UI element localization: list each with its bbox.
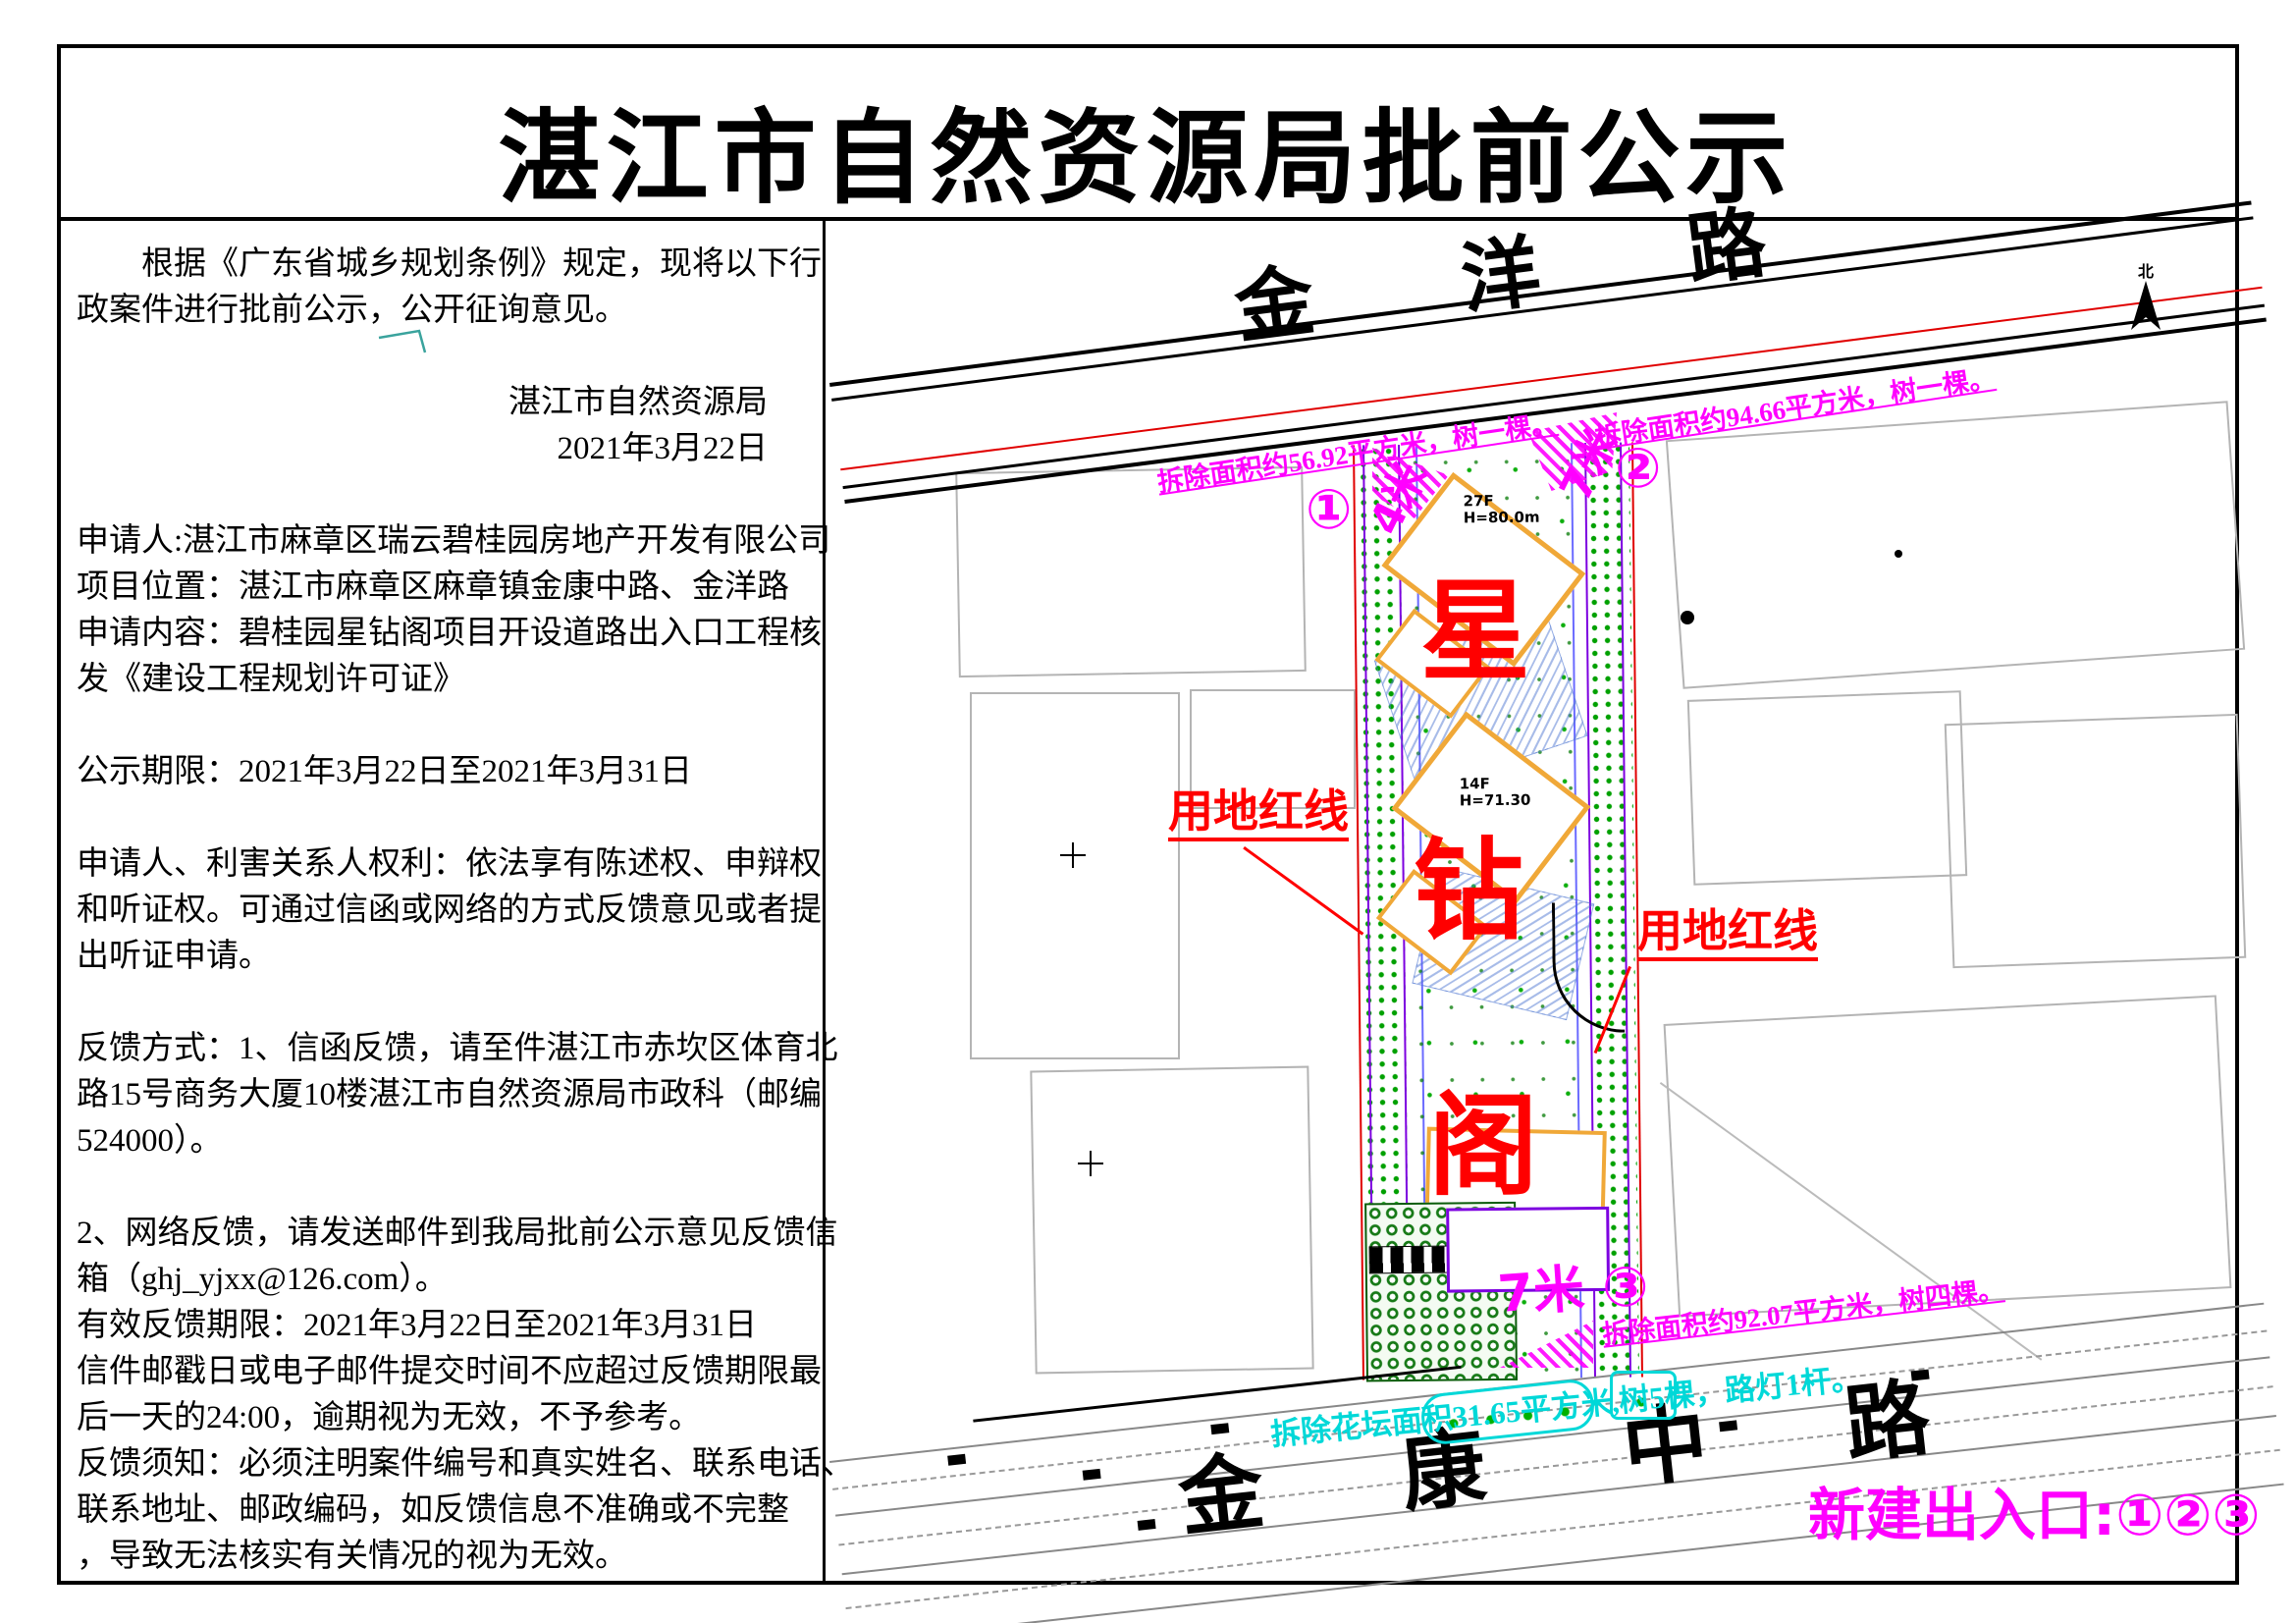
notice-text-line: 箱（ghj_yjxx@126.com）。 bbox=[77, 1257, 815, 1303]
north-arrow-icon: 北 bbox=[2116, 261, 2175, 336]
parcel-west-1 bbox=[955, 466, 1307, 677]
building-height-label: H=80.0m bbox=[1464, 509, 1540, 527]
notice-text-line: 政案件进行批前公示，公开征询意见。 bbox=[77, 288, 815, 334]
notice-text-line: 项目位置：湛江市麻章区麻章镇金康中路、金洋路 bbox=[77, 565, 815, 611]
pen-check-mark bbox=[376, 326, 441, 357]
parcel-east-2 bbox=[1687, 690, 1967, 886]
parcel-east-3 bbox=[1945, 714, 2247, 968]
survey-cross-icon bbox=[1060, 842, 1086, 868]
title-separator-line bbox=[57, 217, 2235, 221]
parcel-east-4 bbox=[1664, 995, 2232, 1317]
notice-text-line bbox=[77, 703, 815, 749]
notice-text-line: 反馈须知：必须注明案件编号和真实姓名、联系电话、 bbox=[77, 1441, 815, 1488]
new-entrances-note: 新建出入口:①②③ bbox=[1808, 1469, 2261, 1551]
map-dot bbox=[1895, 550, 1902, 558]
notice-text-line: 湛江市自然资源局 bbox=[77, 380, 815, 426]
parcel-west-3 bbox=[1030, 1066, 1313, 1375]
building-floors-label: 27F bbox=[1464, 492, 1494, 510]
notice-text-line: 公示期限：2021年3月22日至2021年3月31日 bbox=[77, 749, 815, 795]
north-label: 北 bbox=[2138, 263, 2154, 281]
notice-text-line: 2、网络反馈，请发送邮件到我局批前公示意见反馈信 bbox=[77, 1211, 815, 1257]
entrance-number-3: ③ bbox=[1602, 1261, 1648, 1316]
public-notice-sheet: 湛江市自然资源局批前公示 根据《广东省城乡规划条例》规定，现将以下行政案件进行批… bbox=[0, 0, 2296, 1623]
notice-text-line: 后一天的24:00，逾期视为无效，不予参考。 bbox=[77, 1395, 815, 1441]
vehicle-mark bbox=[947, 1454, 966, 1466]
site-name-char-ge: 阁 bbox=[1428, 1092, 1538, 1202]
vehicle-mark bbox=[1210, 1423, 1229, 1434]
vehicle-mark bbox=[1138, 1519, 1156, 1531]
red-line-label-west: 用地红线 bbox=[1168, 785, 1349, 841]
notice-text-line: 反馈方式：1、信函反馈，请至件湛江市赤坎区体育北 bbox=[77, 1026, 815, 1072]
notice-text-line: 发《建设工程规划许可证》 bbox=[77, 657, 815, 703]
notice-text-line: 根据《广东省城乡规划条例》规定，现将以下行 bbox=[77, 242, 815, 288]
notice-text-line bbox=[77, 334, 815, 380]
site-name-char-zuan: 钻 bbox=[1414, 837, 1523, 947]
vehicle-mark bbox=[1083, 1469, 1101, 1481]
notice-text-line: 出听证申请。 bbox=[77, 934, 815, 980]
survey-cross-icon bbox=[1078, 1151, 1103, 1176]
red-line-label-east: 用地红线 bbox=[1637, 905, 1818, 961]
notice-text-line bbox=[77, 980, 815, 1026]
notice-text-line: 路15号商务大厦10楼湛江市自然资源局市政科（邮编 bbox=[77, 1072, 815, 1118]
page-title: 湛江市自然资源局批前公示 bbox=[57, 75, 2235, 223]
notice-text-line: 申请人、利害关系人权利：依法享有陈述权、申辩权 bbox=[77, 841, 815, 888]
notice-body-text: 根据《广东省城乡规划条例》规定，现将以下行政案件进行批前公示，公开征询意见。 湛… bbox=[77, 242, 815, 1580]
parcel-east-1 bbox=[1666, 401, 2245, 688]
column-divider-line bbox=[823, 219, 826, 1581]
notice-text-line bbox=[77, 1164, 815, 1211]
notice-text-line: 和听证权。可通过信函或网络的方式反馈意见或者提 bbox=[77, 888, 815, 934]
notice-text-line bbox=[77, 795, 815, 841]
entrance-number-1: ① bbox=[1306, 483, 1352, 538]
notice-text-line: 申请内容：碧桂园星钻阁项目开设道路出入口工程核 bbox=[77, 611, 815, 657]
notice-text-line: 信件邮戳日或电子邮件提交时间不应超过反馈期限最 bbox=[77, 1349, 815, 1395]
notice-text-line: ，导致无法核实有关情况的视为无效。 bbox=[77, 1534, 815, 1580]
site-name-char-xing: 星 bbox=[1420, 577, 1530, 687]
notice-text-line bbox=[77, 472, 815, 518]
notice-text-line: 2021年3月22日 bbox=[77, 426, 815, 472]
entrance-3-width-label: 7米 bbox=[1496, 1264, 1586, 1321]
notice-text-line: 524000）。 bbox=[77, 1118, 815, 1164]
notice-text-line: 有效反馈期限：2021年3月22日至2021年3月31日 bbox=[77, 1303, 815, 1349]
map-dot bbox=[1681, 611, 1694, 624]
notice-text-line: 申请人:湛江市麻章区瑞云碧桂园房地产开发有限公司 bbox=[77, 518, 815, 565]
building-height-label: H=71.30 bbox=[1460, 791, 1531, 810]
vehicle-mark bbox=[1911, 1370, 1930, 1381]
building-floors-label: 14F bbox=[1460, 775, 1490, 792]
notice-text-line: 联系地址、邮政编码，如反馈信息不准确或不完整 bbox=[77, 1488, 815, 1534]
parcel-west-2 bbox=[970, 692, 1180, 1059]
vehicle-mark bbox=[1719, 1420, 1737, 1432]
